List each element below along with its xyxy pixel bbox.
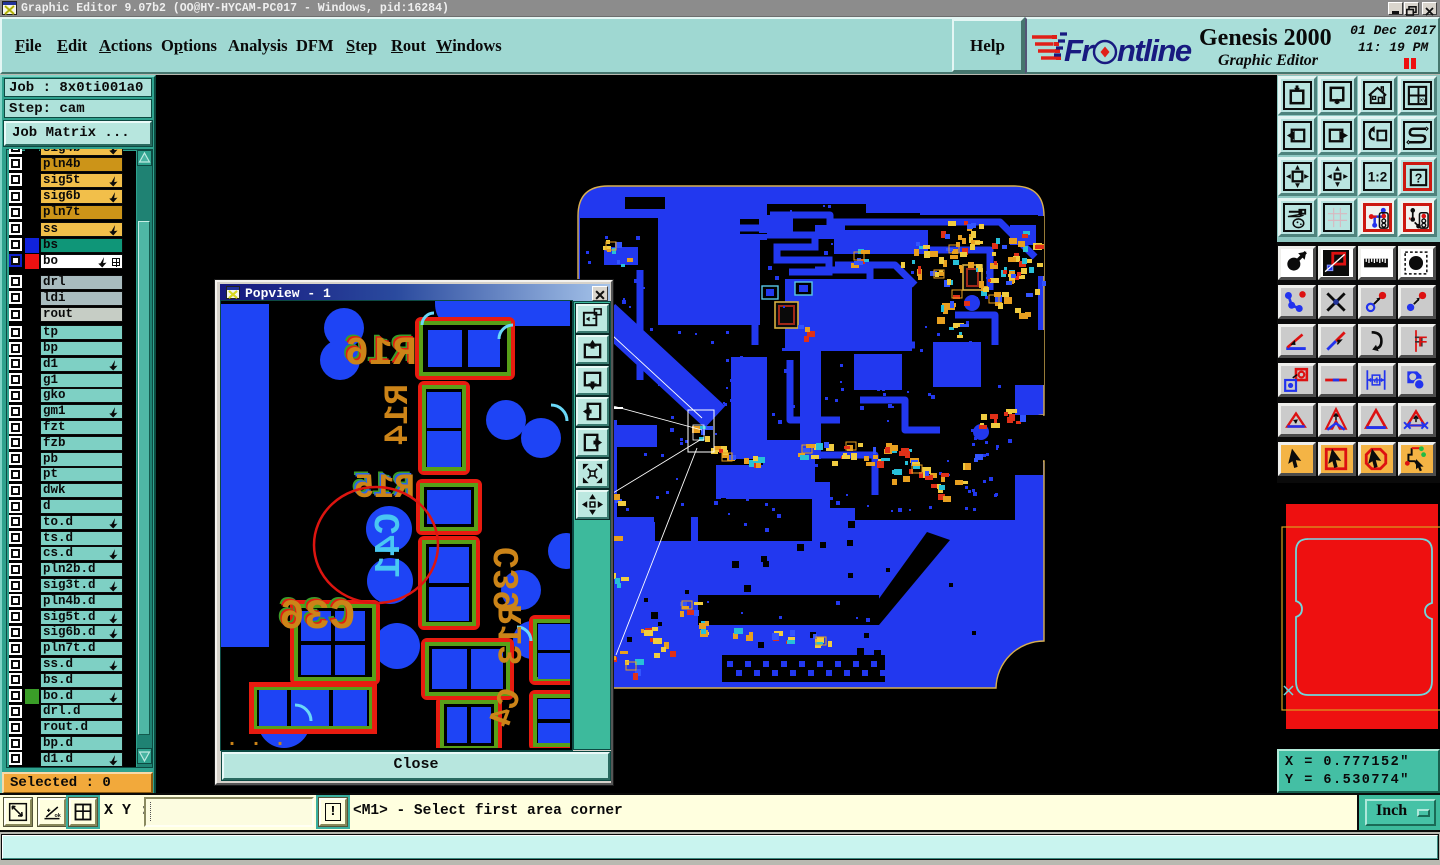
svg-text:R13: R13 bbox=[494, 604, 532, 665]
svg-text:R16: R16 bbox=[345, 332, 417, 377]
svg-text:C36: C36 bbox=[279, 593, 355, 641]
svg-text:R14: R14 bbox=[380, 384, 418, 445]
svg-text:. . .: . . . bbox=[226, 729, 286, 748]
svg-text:Fr: Fr bbox=[1064, 33, 1095, 68]
svg-text:?: ? bbox=[1415, 171, 1423, 185]
svg-text:C39: C39 bbox=[488, 547, 529, 612]
svg-text:C41: C41 bbox=[369, 513, 410, 578]
svg-text:ntline: ntline bbox=[1117, 33, 1192, 68]
svg-text:xy: xy bbox=[1420, 97, 1427, 103]
svg-text:F: F bbox=[1418, 333, 1427, 350]
svg-text:ok: ok bbox=[55, 813, 62, 819]
svg-text:4: 4 bbox=[1374, 375, 1379, 385]
svg-text:1:2: 1:2 bbox=[1368, 169, 1387, 184]
